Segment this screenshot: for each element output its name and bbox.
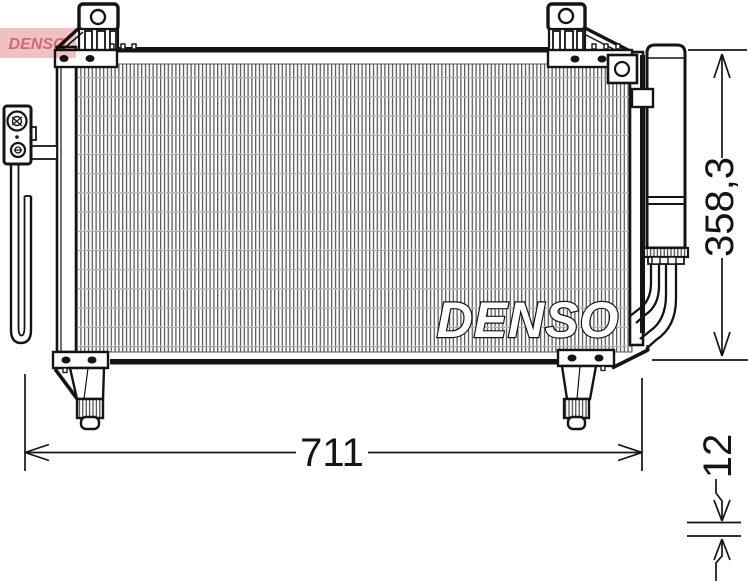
condenser-technical-drawing: DENSO DENSO 711 358,3 12 (0, 0, 748, 586)
bracket-hole-top-right (559, 9, 573, 23)
left-return-pipe (11, 164, 31, 343)
denso-logo-corner: DENSO (0, 28, 76, 58)
bottom-header-bar (110, 359, 560, 365)
top-header-bar (115, 47, 550, 53)
rubber-mount-stud-left (77, 399, 103, 418)
drier-flange (644, 248, 688, 257)
denso-logo-corner-text: DENSO (9, 36, 66, 53)
dimension-width-value: 711 (300, 431, 364, 475)
bracket-hole-top-left (91, 10, 105, 24)
mounting-bracket-bottom-right (558, 345, 648, 429)
rubber-mount-stud-right (564, 399, 589, 418)
denso-watermark-center: DENSO (437, 292, 620, 348)
dimension-core-depth (687, 479, 741, 581)
mounting-bracket-bottom-left (53, 352, 108, 429)
drier-cylinder (647, 45, 685, 248)
drier-clamp (632, 89, 653, 107)
dimension-height-value: 358,3 (698, 157, 742, 257)
drawing-canvas: DENSO DENSO 711 358,3 12 (0, 0, 748, 586)
inlet-outlet-fitting-block (4, 106, 57, 164)
left-side-plate (57, 47, 76, 352)
dimension-depth-value: 12 (696, 434, 740, 479)
drier-bracket-hole (615, 62, 629, 76)
